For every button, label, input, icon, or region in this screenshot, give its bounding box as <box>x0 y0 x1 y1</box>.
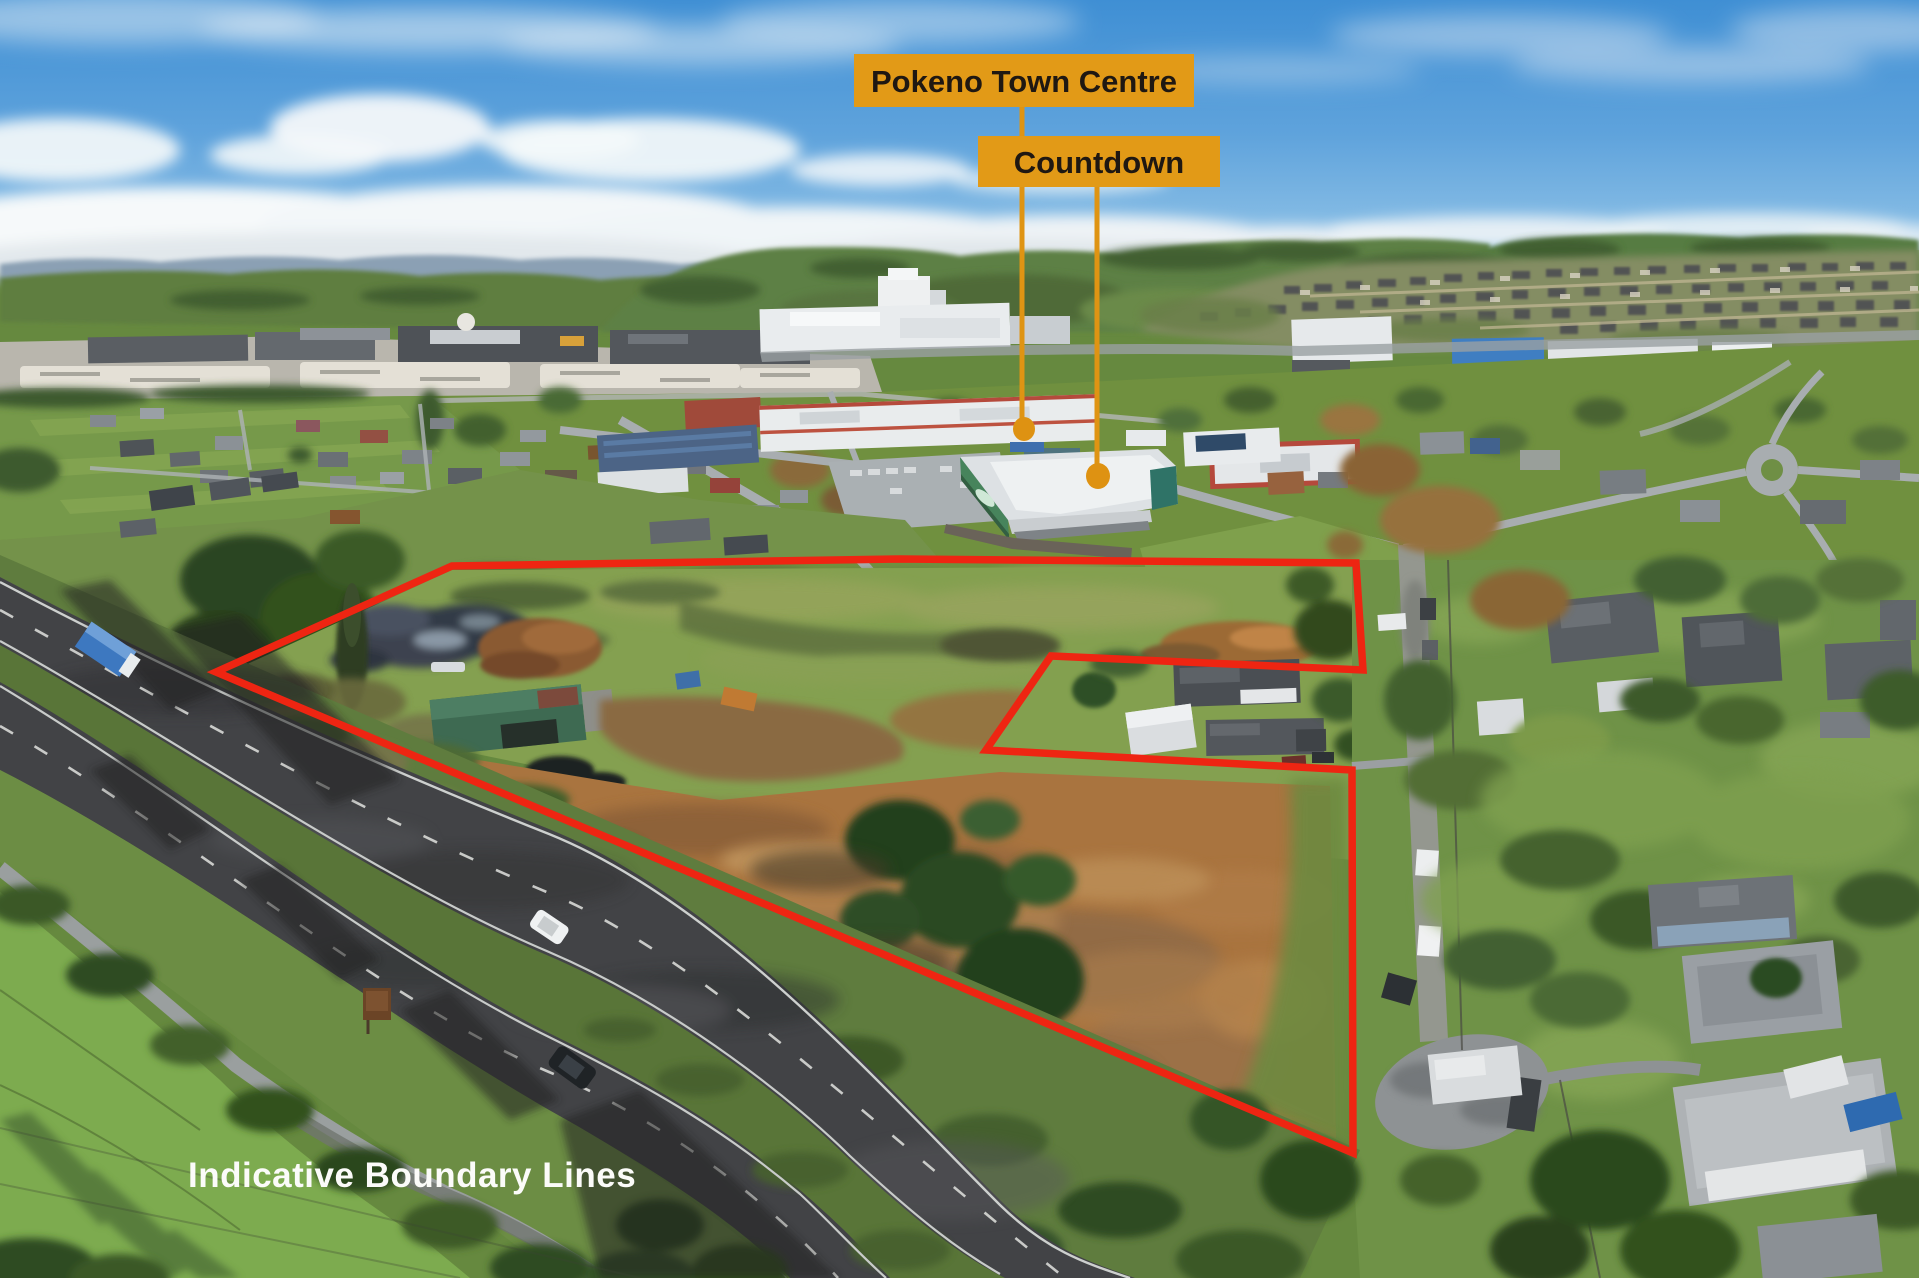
svg-text:Countdown: Countdown <box>1014 145 1184 180</box>
svg-text:Indicative Boundary Lines: Indicative Boundary Lines <box>188 1156 636 1195</box>
svg-text:Pokeno Town Centre: Pokeno Town Centre <box>871 64 1177 99</box>
